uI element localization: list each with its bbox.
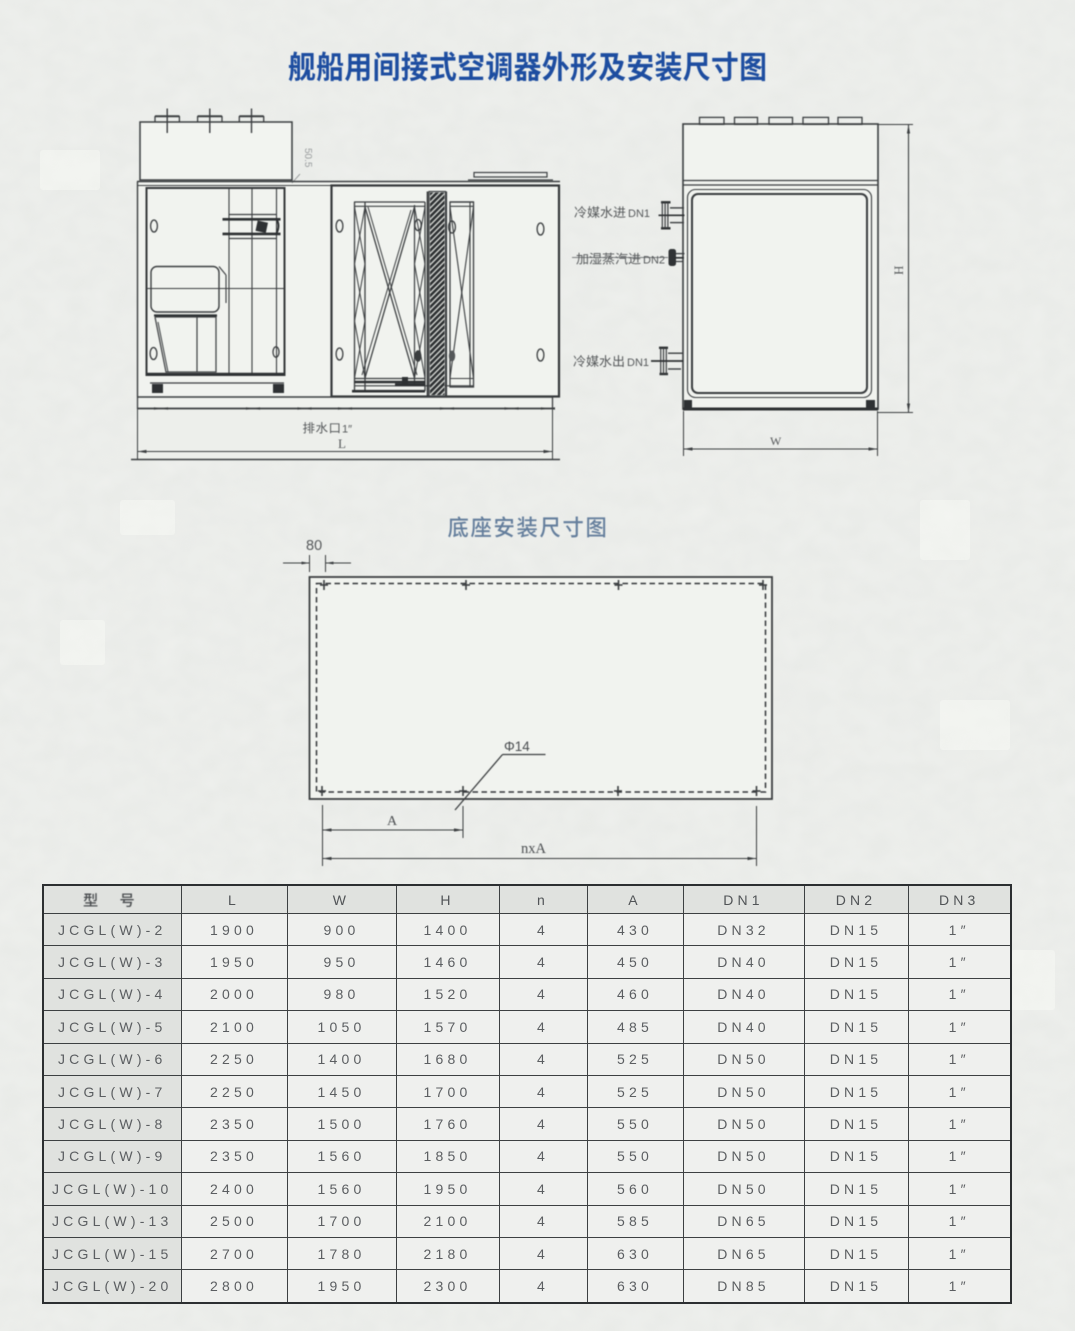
svg-text:DN1: DN1 <box>627 357 649 369</box>
svg-text:1″: 1″ <box>342 424 352 436</box>
svg-text:DN2: DN2 <box>643 255 665 267</box>
svg-text:50.5: 50.5 <box>302 148 313 168</box>
svg-text:W: W <box>770 434 782 448</box>
svg-text:A: A <box>387 814 398 829</box>
svg-text:80: 80 <box>306 538 322 554</box>
svg-text:DN1: DN1 <box>628 208 650 220</box>
svg-text:Φ14: Φ14 <box>504 739 530 754</box>
svg-text:nxA: nxA <box>521 841 547 857</box>
svg-text:H: H <box>891 266 906 275</box>
svg-text:L: L <box>338 436 346 451</box>
